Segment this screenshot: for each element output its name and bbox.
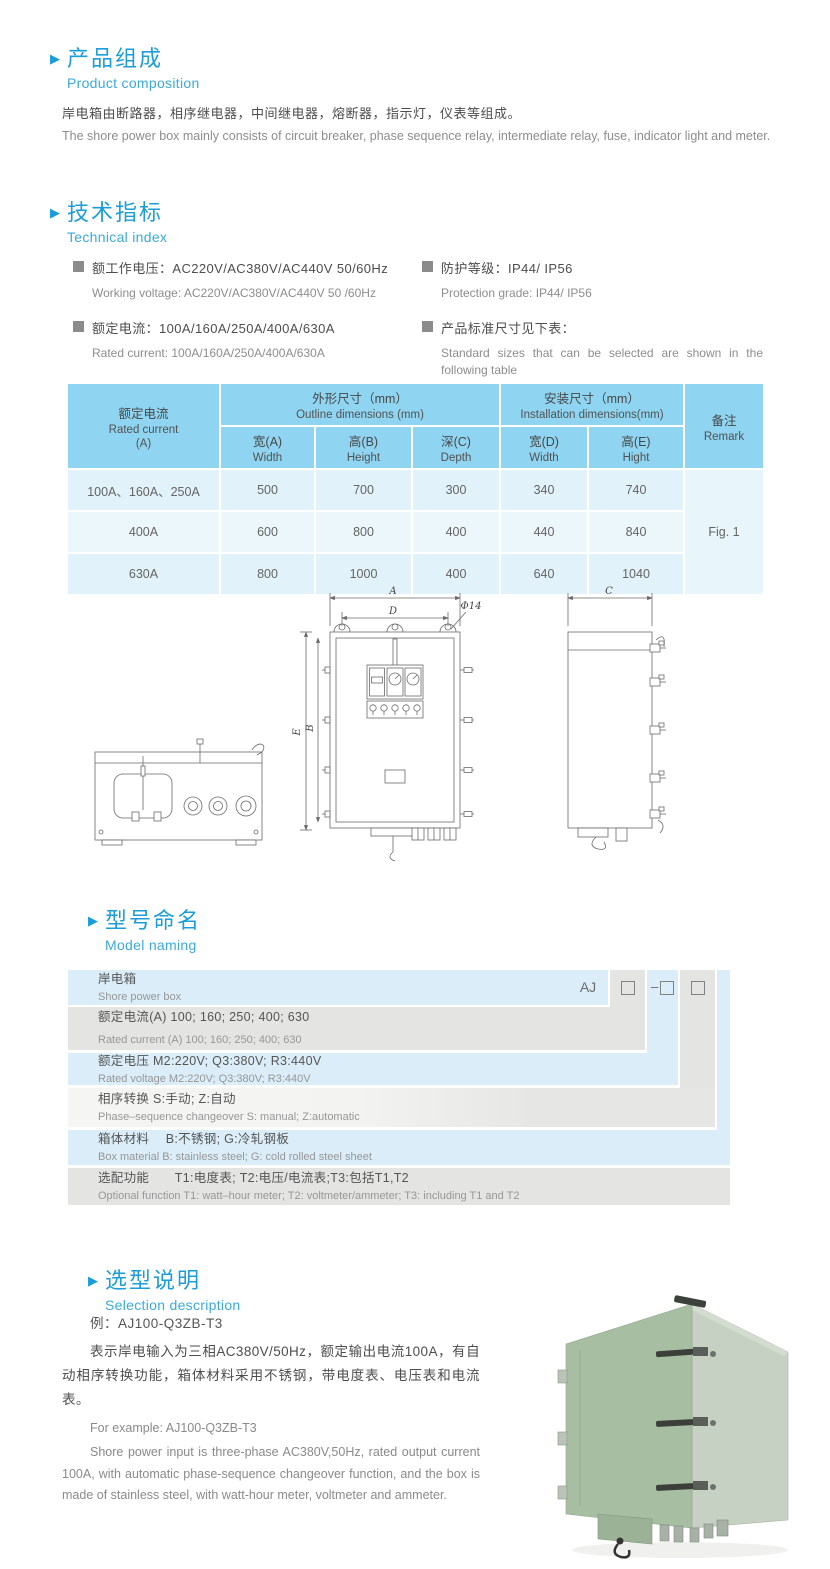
size-table: 额定电流 Rated current (A) 外形尺寸（mm） Outline … <box>66 382 765 596</box>
model-title-cn: 型号命名 <box>105 908 201 934</box>
product-title-en: Product composition <box>67 75 200 91</box>
col-header-height-e: 高(E)Hight <box>589 427 683 468</box>
code-placeholder-box <box>660 981 674 995</box>
bullet-item: 额工作电压：AC220V/AC380V/AC440V 50/60Hz Worki… <box>73 258 413 302</box>
model-row-shore-power-box: 岸电箱 Shore power box <box>68 970 608 1005</box>
technical-title-cn: 技术指标 <box>67 200 167 226</box>
technical-bullets-left: 额工作电压：AC220V/AC380V/AC440V 50/60Hz Worki… <box>73 258 413 378</box>
section-arrow-icon: ▶ <box>50 200 60 226</box>
section-technical-header: ▶ 技术指标 Technical index <box>50 200 167 245</box>
selection-example-cn: 例：AJ100-Q3ZB-T3 <box>62 1312 480 1332</box>
model-row-box-material: 箱体材料 B:不锈钢; G:冷轧钢板 Box material B: stain… <box>68 1130 730 1165</box>
table-row: 400A 600 800 400 440 840 <box>68 512 763 552</box>
col-header-depth-c: 深(C)Depth <box>413 427 499 468</box>
svg-text:E: E <box>292 728 303 737</box>
svg-text:B: B <box>305 724 316 732</box>
selection-text-block: 例：AJ100-Q3ZB-T3 表示岸电输入为三相AC380V/50Hz，额定输… <box>62 1312 480 1507</box>
svg-text:D: D <box>388 606 397 617</box>
selection-title-cn: 选型说明 <box>105 1268 241 1294</box>
remark-cell: Fig. 1 <box>685 470 763 594</box>
model-code-prefix: AJ <box>573 970 603 1005</box>
bullet-text-cn: 额工作电压：AC220V/AC380V/AC440V 50/60Hz <box>92 258 388 277</box>
bullet-item: 防护等级：IP44/ IP56 Protection grade: IP44/ … <box>422 258 767 302</box>
selection-body-en: Shore power input is three-phase AC380V,… <box>62 1442 480 1507</box>
product-photo <box>540 1292 828 1564</box>
table-row: 100A、160A、250A 500 700 300 340 740 Fig. … <box>68 470 763 510</box>
phi14-label: Φ14 <box>461 601 482 612</box>
product-body-cn: 岸电箱由断路器，相序继电器，中间继电器，熔断器，指示灯，仪表等组成。 <box>62 103 762 122</box>
bullet-text-cn: 额定电流：100A/160A/250A/400A/630A <box>92 318 335 337</box>
side-latches-icon <box>650 641 666 818</box>
drawing-side-view: C <box>568 586 666 849</box>
bullet-item: 额定电流：100A/160A/250A/400A/630A Rated curr… <box>73 318 413 362</box>
section-arrow-icon: ▶ <box>88 908 98 934</box>
model-row-optional-function: 选配功能 T1:电度表; T2:电压/电流表;T3:包括T1,T2 Option… <box>68 1168 730 1205</box>
bullet-text-en: Protection grade: IP44/ IP56 <box>441 285 592 302</box>
section-arrow-icon: ▶ <box>88 1268 98 1294</box>
bullet-text-en: Rated current: 100A/160A/250A/400A/630A <box>92 345 335 362</box>
technical-drawing: A D Φ14 E B <box>60 582 770 882</box>
bullet-text-cn: 防护等级：IP44/ IP56 <box>441 258 592 277</box>
section-product-header: ▶ 产品组成 Product composition <box>50 46 200 91</box>
model-row-rated-current: 额定电流(A) 100; 160; 250; 400; 630 Rated cu… <box>68 1007 645 1050</box>
selection-body-cn: 表示岸电输入为三相AC380V/50Hz，额定输出电流100A，有自动相序转换功… <box>62 1340 480 1412</box>
col-header-width-d: 宽(D)Width <box>501 427 587 468</box>
col-header-rated-current: 额定电流 Rated current (A) <box>68 384 219 468</box>
selection-example-en: For example: AJ100-Q3ZB-T3 <box>62 1421 480 1435</box>
product-title-cn: 产品组成 <box>67 46 200 72</box>
model-row-phase-sequence: 相序转换 S:手动; Z:自动 Phase–sequence changeove… <box>68 1088 715 1127</box>
bullet-text-en: Working voltage: AC220V/AC380V/AC440V 50… <box>92 285 388 302</box>
meter-panel-icon <box>367 665 423 718</box>
bullet-square-icon <box>73 261 84 272</box>
model-row-rated-voltage: 额定电压 M2:220V; Q3:380V; R3:440V Rated vol… <box>68 1053 678 1085</box>
code-placeholder-box <box>621 981 635 995</box>
bullet-text-cn: 产品标准尺寸见下表： <box>441 318 763 337</box>
col-header-width-a: 宽(A)Width <box>221 427 314 468</box>
model-naming-table: – 岸电箱 Shore power box AJ 额定电流(A) 100; 16… <box>68 970 730 1206</box>
page: { "product": { "title_cn": "产品组成", "titl… <box>0 0 830 1568</box>
mounting-flange <box>598 1514 652 1544</box>
hinge-icon <box>558 1370 567 1499</box>
svg-text:C: C <box>605 586 613 597</box>
bullet-square-icon <box>422 261 433 272</box>
col-header-height-b: 高(B)Height <box>316 427 411 468</box>
section-model-header: ▶ 型号命名 Model naming <box>88 908 201 953</box>
section-selection-header: ▶ 选型说明 Selection description <box>88 1268 241 1313</box>
technical-bullets-right: 防护等级：IP44/ IP56 Protection grade: IP44/ … <box>422 258 767 395</box>
selection-title-en: Selection description <box>105 1297 241 1313</box>
cabinet-side-face <box>692 1304 788 1528</box>
col-header-remark: 备注 Remark <box>685 384 763 468</box>
technical-title-en: Technical index <box>67 229 167 245</box>
code-placeholder-box <box>691 981 705 995</box>
section-arrow-icon: ▶ <box>50 46 60 72</box>
drawing-bottom-view <box>95 739 264 845</box>
col-group-installation-dimensions: 安装尺寸（mm） Installation dimensions(mm) <box>501 384 683 425</box>
bullet-square-icon <box>422 321 433 332</box>
drawing-front-view: A D Φ14 E B <box>292 586 481 861</box>
cabinet-front-face <box>566 1304 692 1528</box>
bullet-square-icon <box>73 321 84 332</box>
model-title-en: Model naming <box>105 937 201 953</box>
col-group-outline-dimensions: 外形尺寸（mm） Outline dimensions (mm) <box>221 384 499 425</box>
product-body-en: The shore power box mainly consists of c… <box>62 129 772 143</box>
bullet-text-en: Standard sizes that can be selected are … <box>441 345 763 379</box>
bullet-item: 产品标准尺寸见下表： Standard sizes that can be se… <box>422 318 767 379</box>
svg-text:A: A <box>388 586 396 597</box>
